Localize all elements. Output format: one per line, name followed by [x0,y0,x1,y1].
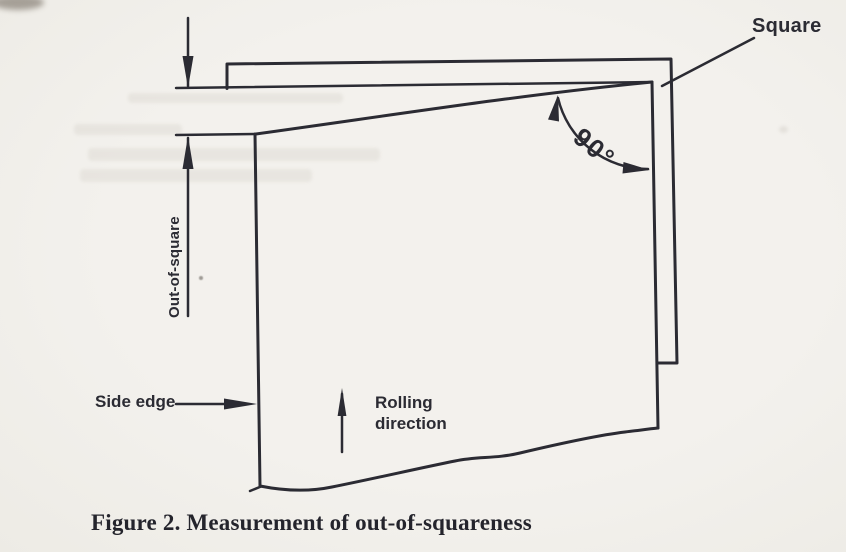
square-reference-edge [176,82,652,88]
square-label: Square [752,15,822,38]
figure-caption: Figure 2. Measurement of out-of-squarene… [91,510,532,536]
out-of-square-label: Out-of-square [166,216,183,318]
dimension-arrow-up-icon [183,136,194,169]
angle-arc-arrow-upper-icon [548,95,559,122]
side-edge-label: Side edge [95,392,175,412]
square-label-leader-line [662,38,754,86]
sheet-right-edge [652,82,658,428]
sheet-left-edge [255,134,260,486]
sheet-bottom-wavy-edge [260,428,658,490]
rolling-direction-label: Rolling direction [375,392,453,434]
dimension-arrow-down-icon [183,56,194,88]
square-tool-outline [227,59,677,363]
side-edge-arrow-icon [224,399,257,410]
sheet-edge-extension-line [176,134,256,135]
out-of-squareness-diagram [0,0,846,552]
rolling-direction-arrow-icon [338,388,347,416]
sheet-corner-tick [250,487,261,492]
